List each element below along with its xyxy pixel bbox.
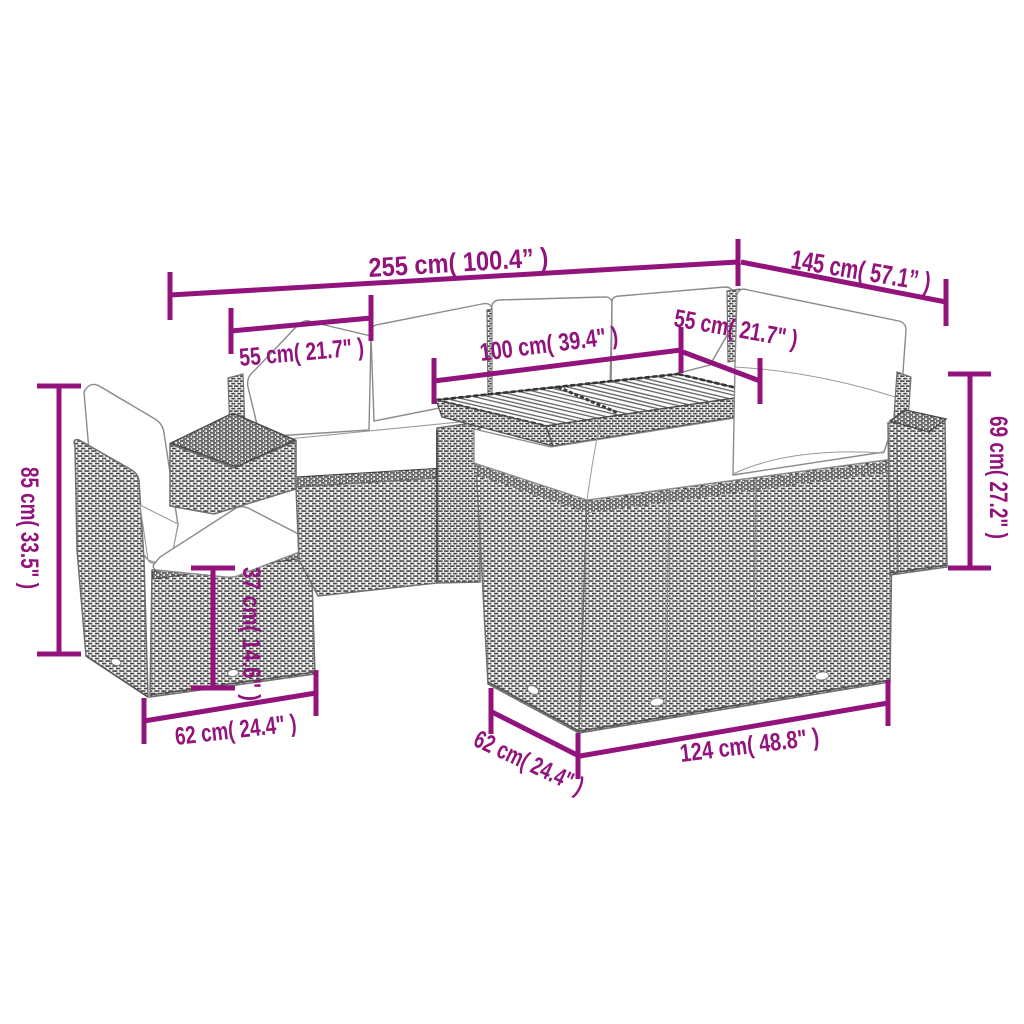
svg-text:85 cm( 33.5" ): 85 cm( 33.5" ) [15,467,43,589]
svg-text:69 cm( 27.2" ): 69 cm( 27.2" ) [984,416,1012,539]
svg-text:37 cm( 14.6" ): 37 cm( 14.6" ) [237,567,265,701]
